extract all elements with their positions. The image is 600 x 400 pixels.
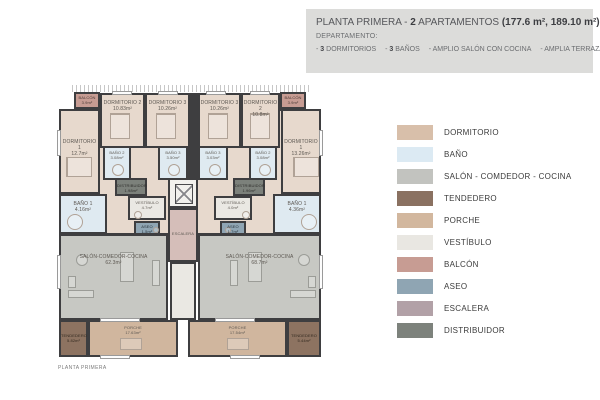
room-label: BAÑO 14.16m² <box>61 201 105 213</box>
room-dormitorio-2-left: DORMITORIO 210.83m² <box>100 93 145 148</box>
room-bano-2-left: BAÑO 23.08m² <box>103 146 131 180</box>
shower-icon <box>67 214 83 230</box>
bed-icon <box>110 113 130 139</box>
room-label: DORMITORIO 112.7m² <box>61 139 98 157</box>
toilet-icon <box>225 227 231 233</box>
legend-item: BALCÓN <box>397 253 572 275</box>
legend-label: BALCÓN <box>444 260 479 269</box>
legend-label: TENDEDERO <box>444 194 497 203</box>
sofa-icon <box>68 290 94 298</box>
shower-icon <box>112 164 124 176</box>
legend-item: TENDEDERO <box>397 187 572 209</box>
feature-dormitorios: - 3 DORMITORIOS <box>316 46 376 53</box>
window <box>57 130 61 156</box>
legend-item: VESTÍBULO <box>397 231 572 253</box>
room-label: BAÑO 14.36m² <box>275 201 319 213</box>
plan-caption: PLANTA PRIMERA <box>58 365 107 371</box>
room-balcon-left: BALCÓN3.9m² <box>74 92 100 109</box>
legend-swatch <box>397 257 433 272</box>
legend-label: VESTÍBULO <box>444 238 492 247</box>
legend-label: DORMITORIO <box>444 128 499 137</box>
window <box>230 355 260 359</box>
department-label: DEPARTAMENTO: <box>316 33 583 40</box>
bed-icon <box>293 157 319 177</box>
kitchen-island-icon <box>230 260 238 286</box>
legend-label: PORCHE <box>444 216 480 225</box>
window <box>206 91 226 95</box>
legend-label: SALÓN - COMDEDOR - COCINA <box>444 172 572 181</box>
room-bano-3-right: BAÑO 33.03m² <box>198 146 228 180</box>
legend: DORMITORIOBAÑOSALÓN - COMDEDOR - COCINAT… <box>397 121 572 341</box>
shower-icon <box>301 214 317 230</box>
room-label: ESCALERA <box>170 232 196 237</box>
feature-banos: - 3 BAÑOS <box>385 46 420 53</box>
feature-terraza: - AMPLIA TERRAZA <box>540 46 600 53</box>
room-dormitorio-2-right: DORMITORIO 210.8m² <box>241 93 280 148</box>
toilet-icon <box>153 227 159 233</box>
floor-plan-sheet: PLANTA PRIMERA - 2 APARTAMENTOS (177.6 m… <box>0 0 600 400</box>
room-label: TENDEDERO5.82m² <box>61 334 86 344</box>
legend-item: SALÓN - COMDEDOR - COCINA <box>397 165 572 187</box>
room-distribuidor-right: DISTRIBUIDOR1.96m² <box>233 178 265 196</box>
legend-item: ASEO <box>397 275 572 297</box>
legend-label: DISTRIBUIDOR <box>444 326 505 335</box>
center-hall <box>170 262 196 320</box>
sink-icon <box>242 211 250 219</box>
bed-icon <box>156 113 176 139</box>
legend-swatch <box>397 169 433 184</box>
bed-icon <box>250 113 270 139</box>
window <box>158 91 178 95</box>
room-label: BALCÓN3.9m² <box>76 96 98 106</box>
bed-icon <box>208 113 228 139</box>
legend-swatch <box>397 125 433 140</box>
sink-icon <box>134 211 142 219</box>
dining-table-icon <box>120 252 134 282</box>
shower-icon <box>209 164 221 176</box>
bed-icon <box>66 157 92 177</box>
legend-swatch <box>397 147 433 162</box>
legend-item: DORMITORIO <box>397 121 572 143</box>
sofa-icon <box>308 276 316 288</box>
room-bano-1-left: BAÑO 14.16m² <box>59 194 107 234</box>
room-label: DORMITORIO 310.26m² <box>147 100 188 112</box>
coffee-table-icon <box>298 254 310 266</box>
legend-swatch <box>397 301 433 316</box>
sofa-icon <box>68 276 76 288</box>
room-label: DORMITORIO 210.83m² <box>102 100 143 112</box>
room-salon-right: SALÓN-COMEDOR-COCINA68.7m² <box>198 234 321 320</box>
room-porche-right: PORCHE17.54m² <box>188 320 287 357</box>
sliding-door <box>215 318 255 322</box>
room-distribuidor-left: DISTRIBUIDOR1.98m² <box>115 178 147 196</box>
patio-table-icon <box>227 338 249 350</box>
window <box>319 130 323 156</box>
room-tendedero-left: TENDEDERO5.82m² <box>59 320 88 357</box>
legend-item: DISTRIBUIDOR <box>397 319 572 341</box>
room-label: VESTÍBULO4.0m² <box>216 201 250 211</box>
room-salon-left: SALÓN-COMEDOR-COCINA62.3m² <box>59 234 168 320</box>
room-label: DISTRIBUIDOR1.98m² <box>117 184 145 194</box>
room-label: PORCHE17.54m² <box>190 326 285 336</box>
room-vestibulo-left: VESTÍBULO4.7m² <box>128 196 166 220</box>
room-label: VESTÍBULO4.7m² <box>130 201 164 211</box>
shower-icon <box>259 164 271 176</box>
feature-list: - 3 DORMITORIOS - 3 BAÑOS - AMPLIO SALÓN… <box>316 46 583 53</box>
room-label: DORMITORIO 113.26m² <box>283 139 319 157</box>
room-vestibulo-right: VESTÍBULO4.0m² <box>214 196 252 220</box>
room-dormitorio-1-left: DORMITORIO 112.7m² <box>59 109 100 194</box>
window <box>250 91 270 95</box>
room-label: BAÑO 33.50m² <box>160 151 186 161</box>
room-label: TENDEDERO5.44m² <box>289 334 319 344</box>
elevator-icon <box>175 184 193 204</box>
room-escalera: ESCALERA <box>168 208 198 262</box>
room-aseo-left: ASEO1.5m² <box>134 221 160 235</box>
kitchen-island-icon <box>152 260 160 286</box>
room-aseo-right: ASEO1.7m² <box>220 221 246 235</box>
room-label: DISTRIBUIDOR1.96m² <box>235 184 263 194</box>
page-title: PLANTA PRIMERA - 2 APARTAMENTOS (177.6 m… <box>316 17 583 28</box>
room-label: PORCHE17.63m² <box>90 326 176 336</box>
feature-salon: - AMPLIO SALÓN CON COCINA <box>429 46 532 53</box>
room-dormitorio-3-left: DORMITORIO 310.26m² <box>145 93 190 148</box>
room-bano-2-right: BAÑO 23.08m² <box>249 146 277 180</box>
party-wall-shaft <box>188 93 198 178</box>
room-label: BAÑO 23.08m² <box>105 151 129 161</box>
room-porche-left: PORCHE17.63m² <box>88 320 178 357</box>
legend-label: ASEO <box>444 282 467 291</box>
patio-table-icon <box>120 338 142 350</box>
legend-item: ESCALERA <box>397 297 572 319</box>
room-label: BAÑO 23.08m² <box>251 151 275 161</box>
coffee-table-icon <box>76 254 88 266</box>
room-bano-3-left: BAÑO 33.50m² <box>158 146 188 180</box>
room-tendedero-right: TENDEDERO5.44m² <box>287 320 321 357</box>
room-bano-1-right: BAÑO 14.36m² <box>273 194 321 234</box>
dining-table-icon <box>248 252 262 282</box>
title-block: PLANTA PRIMERA - 2 APARTAMENTOS (177.6 m… <box>306 9 593 73</box>
sofa-icon <box>290 290 316 298</box>
room-label: BALCÓN3.9m² <box>282 96 304 106</box>
legend-label: ESCALERA <box>444 304 489 313</box>
window <box>112 91 132 95</box>
room-dormitorio-3-right: DORMITORIO 310.26m² <box>198 93 241 148</box>
legend-label: BAÑO <box>444 150 468 159</box>
sliding-door <box>100 318 140 322</box>
room-label: BAÑO 33.03m² <box>200 151 226 161</box>
shower-icon <box>168 164 180 176</box>
window <box>319 255 323 289</box>
legend-swatch <box>397 323 433 338</box>
legend-swatch <box>397 213 433 228</box>
legend-swatch <box>397 191 433 206</box>
window <box>57 255 61 289</box>
legend-swatch <box>397 279 433 294</box>
legend-item: PORCHE <box>397 209 572 231</box>
room-label: DORMITORIO 310.26m² <box>200 100 239 112</box>
room-dormitorio-1-right: DORMITORIO 113.26m² <box>281 109 321 194</box>
elevator <box>168 178 198 208</box>
legend-swatch <box>397 235 433 250</box>
room-balcon-right: BALCÓN3.9m² <box>280 92 306 109</box>
hatch-strip <box>72 85 312 92</box>
legend-item: BAÑO <box>397 143 572 165</box>
window <box>100 355 130 359</box>
